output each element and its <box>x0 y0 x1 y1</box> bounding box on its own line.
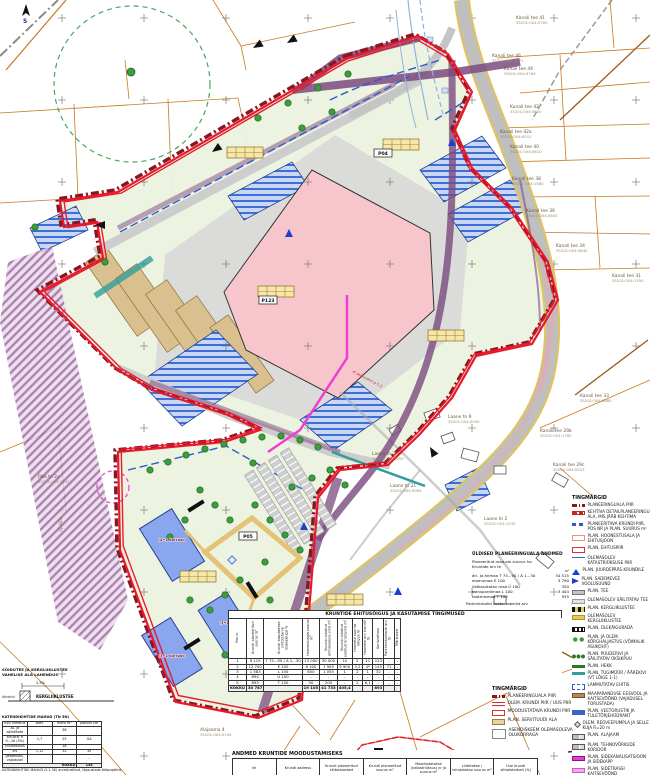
building-rights-table: Pos nrKrundi planeeritud suurus m²Krundi… <box>228 618 401 692</box>
tree-icon <box>289 484 295 490</box>
legend-entry: PLAN. ÜLEKÄIGURADA <box>572 626 650 632</box>
tree-icon <box>327 467 333 473</box>
table-header-cell: Krundi planeeritud sihtotstarbed <box>320 759 364 775</box>
tanbox-swatch <box>492 719 505 725</box>
table-cell: killustik fr 0...16 (5%) <box>3 736 28 745</box>
table-cell <box>27 754 52 763</box>
plot-data-box <box>180 571 216 582</box>
table-header-cell: Liidetakse / lahutatakse suurus m² <box>450 759 494 775</box>
tree-icon <box>183 452 189 458</box>
blackyellow-swatch <box>572 607 585 612</box>
legend-entry-label: KEHTIVA DETAILPLANEERINGU ALA, MIS JÄÄB … <box>588 510 650 520</box>
legend-entry: PLAN. SADEMEVEE VOOLUSUUND <box>572 577 650 587</box>
table-row: 19 115T 75...90 / Ä 1...3013 00030 00010… <box>229 659 401 664</box>
table-cell: killustikalus <box>3 744 28 749</box>
tree-icon <box>222 592 228 598</box>
parcel-code: 35201:004:0053 <box>372 456 404 461</box>
legend-entry-label: OLEMASOLEV KATASTRIÜKSUSE PIIR <box>588 556 650 566</box>
table-header-cell: Krundi aadress <box>276 759 320 775</box>
table-cell: 1,7 <box>27 736 52 745</box>
legend-entry: OLEMASOLEV KERGLIIKLUSTEE <box>572 614 650 624</box>
table-header-cell: Krundi planeeritud suurus m² <box>363 759 407 775</box>
tree-icon <box>345 71 351 77</box>
legend-entry-label: OLEM. REOVEEPUMPLA JA SELLE KUJA R=20 m <box>583 721 650 731</box>
legend-entry: MAAPARANDUSE EESVOOL JA KAITSEVÖÖND (VAJ… <box>572 692 650 706</box>
legend-entry-label: PLAN. JA OLEM. KÕRGHALJASTUS (VÕIMALIK A… <box>588 635 650 649</box>
plot-code-label: P123 <box>262 298 275 304</box>
tree-icon <box>182 517 188 523</box>
legend-entry-label: PLAN. TEHNOVÕRKUDE KORIDOR <box>588 743 650 753</box>
legend-entry: PLAN. JA OLEM. KÕRGHALJASTUS (VÕIMALIK A… <box>572 635 650 649</box>
legend-entry: PLAN. EHITUSPIIR <box>572 546 650 553</box>
table-cell: 30 000 <box>320 659 338 664</box>
section-dim: 2,5% <box>36 681 46 685</box>
building-rights-table-wrap: KRUNTIDE EHITUSÕIGUS JA KASUTAMISE TINGI… <box>228 610 562 692</box>
parcel-code: 35201:004:1241 <box>38 479 70 484</box>
table-row: AC ja asfaltkate38 <box>3 727 102 736</box>
table-cell: 9 900 <box>337 664 352 669</box>
legend-entry-label: PLAN. SADEMEVEE VOOLUSUUND <box>582 577 650 587</box>
table-header-cell: Hoonestusala suurus m² <box>302 619 320 659</box>
tree-icon <box>285 100 291 106</box>
tree-icon <box>187 597 193 603</box>
tree-icon <box>255 115 261 121</box>
table-header-cell: Suurim lubatud ehitisealune pind m² <box>320 619 338 659</box>
salmon-swatch <box>572 535 585 541</box>
parcel-code: 35201:004:0805 <box>526 213 558 218</box>
legend-entry-label: PLAN. TUGIMÜÜR / ÄÄREKIVI (VT LÕIGE 1-1) <box>588 671 650 681</box>
legend-entry: PLAN. SIDETRASSI KAITSEVÖÖND <box>572 767 650 775</box>
legend-entry: PLAN. TEHNOVÕRKUDE KORIDOR <box>572 743 650 753</box>
legend-entry: PLAN. VEETORUSTIK JA TULETÕRJEHÜDRANT <box>572 709 650 719</box>
zebra-swatch <box>572 627 585 632</box>
legend-secondary-entries: PLANEERINGUALA PIIROLEM. KRUNDI PIIR / U… <box>492 694 582 739</box>
legend-entry-label: ASENDISKEEM OLEMASOLEVA OLUKORRAGA <box>509 728 583 738</box>
tree-icon <box>252 502 258 508</box>
plot-data-box <box>327 594 363 605</box>
tree-icon <box>297 547 303 553</box>
planning-data-land-rows: äri- ja ärimaa T 75...90 / Ä 1...3034 51… <box>472 573 578 599</box>
bluearr-swatch <box>572 578 579 584</box>
materials-table: Kihi nimetuskoef.maht m³paksus cmAC ja a… <box>2 721 102 768</box>
table-cell: KOKKU <box>229 686 247 691</box>
tree-icon <box>250 460 256 466</box>
legend-entry: PLAN. JUURDEPÄÄS KRUNDILE <box>572 568 650 575</box>
trees-swatch <box>572 636 585 643</box>
table-header-row: NrKrundi aadressKrundi planeeritud sihto… <box>233 759 538 775</box>
table-cell: – <box>77 754 102 763</box>
table-cell: 30 787 <box>246 686 264 691</box>
legend: TINGMÄRGID PLANEERINGUALA PIIRKEHTIVA DE… <box>572 496 650 775</box>
tree-icon <box>259 434 265 440</box>
tree-icon <box>207 607 213 613</box>
table-row: 212 700E 1006 1001 9059 9003,24*14571- <box>229 664 401 669</box>
cross-section-drawing: 2,5% äärekivi KERGLIIKLUSTEE <box>2 677 120 711</box>
greybox2-swatch <box>572 744 585 750</box>
table-cell <box>27 727 52 736</box>
areapiir-swatch <box>572 504 585 507</box>
legend-entry-label: PLANEERITAVA KRUNDI PIIR, POS NR JA PLAN… <box>588 522 650 532</box>
table-cell <box>394 686 401 691</box>
legend-entry-label: PLANEERINGUALA PIIR <box>508 694 556 699</box>
planning-data-row: Kruntide arv tk5 <box>472 564 578 569</box>
legend-entry: OLEMASOLEV SÄILITATAV TEE <box>572 598 650 604</box>
legend-entry-label: OLEM. KRUNDI PIIR / UUS PIIR <box>508 701 572 706</box>
table-header-row: Pos nrKrundi planeeritud suurus m²Krundi… <box>229 619 401 659</box>
table-cell <box>352 686 362 691</box>
building-storeys-label: (3+1 korrust) <box>158 654 186 658</box>
table-cell: AC ja asfaltkate <box>3 727 28 736</box>
parcel-code: 35201:004:0194 <box>200 732 232 737</box>
table-total-row: KOKKU134 <box>3 763 102 768</box>
table-cell <box>363 686 373 691</box>
parcel-code: 35201:004:0840 <box>556 248 588 253</box>
table-header-cell: Krundi kasutamise sihtotstarve osakaalug… <box>264 619 302 659</box>
svg-text:S: S <box>23 18 27 25</box>
legend-entry-label: PLAN. HEKK <box>588 664 612 669</box>
parcel-code: 35201:004:0012 <box>500 134 532 139</box>
parcel-code: 35201:004:1580 <box>512 181 544 186</box>
parking-total-note: Parkimiskohti kokku tabelist arv 31 <box>466 601 576 606</box>
legend-entry: OLEM. KRUNDI PIIR / UUS PIIR <box>492 701 582 706</box>
legend-entry-label: PLAN. JUURDEPÄÄS KRUNDILE <box>583 568 645 573</box>
parcel-code: 35201:004:0013 <box>553 467 585 472</box>
table-row: geotekstiil, vajadusel– <box>3 754 102 763</box>
table-header-cell: paksus cm <box>77 722 102 727</box>
parcel-code: 35201:004:0771 <box>492 58 524 63</box>
legend-entry: PLANEERINGUALA PIIR <box>492 694 582 699</box>
legend-entry-label: PLAN. SIDETRASSI KAITSEVÖÖND <box>588 767 650 775</box>
table-header-cell: Krundi planeeritud suurus m² <box>246 619 264 659</box>
planning-data-block: ÜLDISED PLANEERINGUALA ANDMED Planeeritu… <box>472 552 578 599</box>
parcel-code: 35201:004:1782 <box>540 433 572 438</box>
table-cell: T 75...90 / Ä 1...30 <box>264 659 302 664</box>
parcel-code: 35201:004:0760 <box>504 71 536 76</box>
table-cell: 893 <box>373 686 384 691</box>
plot-data-box <box>428 330 464 341</box>
tree-icon <box>212 502 218 508</box>
table-header-cell: Pos nr <box>229 619 247 659</box>
legend-entry-label: PLAN. HOONESTUSALA JA EHITUSJOON <box>588 534 650 544</box>
table-cell: GA <box>77 736 102 745</box>
legend-entry-label: OLEMASOLEV KERGLIIKLUSTEE <box>588 614 650 624</box>
legend-entry: PLAN. PUUDERIVI JA SÄILITATAV ÜKSIKPUU <box>572 652 650 662</box>
table-cell: 41 733 <box>320 686 338 691</box>
redbox-swatch <box>492 710 505 716</box>
legend-entry: OLEMASOLEV KATASTRIÜKSUSE PIIR <box>572 556 650 566</box>
treerow-swatch <box>572 653 585 660</box>
plot-formation-title: ANDMED KRUNTIDE MOODUSTAMISEKS <box>232 750 538 758</box>
materials-footnote: KATENDIKIHTIDE MAHUD (2:1 5K) arvestusli… <box>2 769 124 773</box>
tree-icon <box>297 437 303 443</box>
plot-data-box <box>258 286 294 297</box>
table-cell: 12 700 <box>246 664 264 669</box>
legend-entry-label: MOODUSTATAVA KRUNDI PIIR <box>508 709 571 714</box>
table-cell: 405,4 <box>337 686 352 691</box>
legend-entry-label: PLAN. PUUDERIVI JA SÄILITATAV ÜKSIKPUU <box>588 652 650 662</box>
legend-entry-label: PLAN. SIDEKANALISATSIOON JA SIDEKAPP <box>588 755 650 765</box>
magenta-swatch <box>572 756 585 761</box>
magental-swatch <box>572 768 585 773</box>
parcel-code: 35201:004:0064 <box>390 488 422 493</box>
table-header-cell: Moodustatakse (katastriüksus) nr ja suur… <box>407 759 451 775</box>
tree-icon <box>197 487 203 493</box>
legend-entry: PLAN. TUGIMÜÜR / ÄÄREKIVI (VT LÕIGE 1-1) <box>572 671 650 681</box>
table-header-cell: Hoonete arv krundil tk <box>363 619 373 659</box>
legend-entry: PLAN. HOONESTUSALA JA EHITUSJOON <box>572 534 650 544</box>
legend-entry-label: PLAN. ALAJAAM <box>588 733 620 738</box>
building-storeys-label: (4+1 korrust) <box>158 538 186 542</box>
plot-data-box <box>227 147 263 158</box>
table-header-cell: Korruselisus <box>373 619 384 659</box>
legend-entry: OLEM. REOVEEPUMPLA JA SELLE KUJA R=20 m <box>572 721 650 731</box>
tree-icon <box>342 482 348 488</box>
table-header-cell: Uue krundi sihtotstarbed (%) <box>494 759 538 775</box>
tree-icon <box>329 109 335 115</box>
legend-entry: PLAN. KERGLIIKLUSTEE <box>572 606 650 612</box>
table-cell: KOKKU <box>3 763 77 768</box>
table-header-cell: Nr <box>233 759 277 775</box>
table-cell: 38 <box>52 727 77 736</box>
tree-icon <box>299 125 305 131</box>
redboxes-swatch <box>572 511 585 515</box>
table-header-cell: Märkused <box>394 619 401 659</box>
legend-title: TINGMÄRGID <box>572 496 650 501</box>
table-cell <box>264 686 302 691</box>
tree-icon <box>221 441 227 447</box>
legend-entry: LAMMUTATAV EHITIS <box>572 683 650 690</box>
legend-entry-label: PLANEERINGUALA PIIR <box>588 503 634 508</box>
plot-formation-table-wrap: ANDMED KRUNTIDE MOODUSTAMISEKS NrKrundi … <box>232 750 538 775</box>
table-header-cell: Parkimiskohtade arv tk <box>384 619 394 659</box>
legend-entry: KEHTIVA DETAILPLANEERINGU ALA, MIS JÄÄB … <box>572 510 650 520</box>
parcel-code: 35201:004:0885 <box>580 398 612 403</box>
legend-entry: PLANEERINGUALA PIIR <box>572 503 650 508</box>
teal-swatch <box>572 672 585 675</box>
legend-entry-label: PLAN. TEE <box>588 589 609 594</box>
table-cell: 134 <box>77 763 102 768</box>
tree-icon <box>240 437 246 443</box>
plot-code-label: P04 <box>378 151 388 157</box>
legend-entry-label: PLAN. SERVITUUDI ALA <box>508 718 558 723</box>
tree-icon <box>282 532 288 538</box>
parcel-code: 35201:004:0650 <box>510 109 542 114</box>
red2-swatch <box>492 702 505 706</box>
legend-entry-label: PLAN. EHITUSPIIR <box>588 546 624 551</box>
parcel-code: 35201:004:0765 <box>516 20 548 25</box>
tree-icon <box>315 444 321 450</box>
legend-entry: MOODUSTATAVA KRUNDI PIIR <box>492 709 582 716</box>
yellow-swatch <box>572 615 585 620</box>
parcel-code: 35201:004:1350 <box>612 278 644 283</box>
legend-entry-label: PLAN. KERGLIIKLUSTEE <box>588 606 635 611</box>
table-header-cell: Suurim lubatud suletud brutopind m² <box>337 619 352 659</box>
village-label: Ojaküla <box>58 516 63 532</box>
tree-icon <box>267 597 273 603</box>
table-cell: 19 105 <box>302 686 320 691</box>
tree-icon <box>102 259 108 265</box>
blueline-swatch <box>572 557 585 559</box>
planning-data-title: ÜLDISED PLANEERINGUALA ANDMED <box>472 552 578 557</box>
tree-icon <box>32 224 38 230</box>
areapiir-swatch <box>492 695 505 698</box>
table-row: killustik fr 0...16 (5%)1,725GA <box>3 736 102 745</box>
parking-total-label: Parkimiskohti kokku tabelist arv <box>466 601 571 606</box>
legend-entry-label: OLEMASOLEV SÄILITATAV TEE <box>588 598 649 603</box>
materials-table-title: KATENDIKIHTIDE MAHUD (TN 5N) <box>2 715 124 719</box>
legend-secondary: TINGMÄRGID PLANEERINGUALA PIIROLEM. KRUN… <box>492 687 582 741</box>
table-cell <box>384 686 394 691</box>
detail-plan-drawing: S Kanali tee 4135201:004:0765Kanali tee … <box>0 0 650 775</box>
table-cell: geotekstiil, vajadusel <box>3 754 28 763</box>
miniplan-swatch <box>492 729 506 739</box>
grey-swatch <box>572 590 585 595</box>
parcel-code: 35201:004:1035 <box>484 521 516 526</box>
hedge-swatch <box>572 665 585 668</box>
tree-icon <box>202 446 208 452</box>
legend-entry-label: MAAPARANDUSE EESVOOL JA KAITSEVÖÖND (VAJ… <box>588 692 650 706</box>
legend-entry: PLAN. ALAJAAM <box>572 733 650 740</box>
legend-entry-label: PLAN. ÜLEKÄIGURADA <box>588 626 633 631</box>
legend-entry: PLAN. SERVITUUDI ALA <box>492 718 582 725</box>
blueboxes-swatch <box>572 523 585 526</box>
tree-icon <box>227 517 233 523</box>
bluetri-swatch <box>572 569 580 575</box>
redbox-swatch <box>572 547 585 553</box>
legend-entry: ASENDISKEEM OLEMASOLEVA OLUKORRAGA <box>492 728 582 739</box>
tree-icon <box>262 559 268 565</box>
legend-entry-label: PLAN. VEETORUSTIK JA TULETÕRJEHÜDRANT <box>588 709 650 719</box>
table-header-cell: Hoonete suurim kõrgus m <box>352 619 362 659</box>
section-label: KERGLIIKLUSTEE <box>36 694 74 699</box>
tree-icon <box>278 433 284 439</box>
table-header-cell: Kihi nimetus <box>3 722 28 727</box>
tree-icon <box>147 467 153 473</box>
table-cell: 13 000 <box>302 659 320 664</box>
planning-data-general: Planeeritud maa-ala suurus ha5,2Kruntide… <box>472 559 578 570</box>
tree-icon <box>309 475 315 481</box>
table-cell: 25 <box>52 736 77 745</box>
tree-icon <box>165 459 171 465</box>
planning-data-row: tootmismaa T 1009351 <box>472 594 578 599</box>
plot-code-label: P05 <box>243 534 253 540</box>
legend-entries: PLANEERINGUALA PIIRKEHTIVA DETAILPLANEER… <box>572 503 650 775</box>
section-side-label: äärekivi <box>2 695 15 699</box>
cross-section-detail: SÕIDUTEE JA KERGLIIKLUSTEE VAHELISE ALA … <box>2 668 124 773</box>
plot-formation-table: NrKrundi aadressKrundi planeeritud sihto… <box>232 758 538 775</box>
table-cell <box>77 727 102 736</box>
parcel-code: 35201:004:0810 <box>510 149 542 154</box>
tree-icon <box>315 85 321 91</box>
tree-icon <box>267 517 273 523</box>
tree-icon <box>237 577 243 583</box>
plot-data-box <box>383 139 419 150</box>
table-total-row: KOKKU30 78719 10541 733405,4893 <box>229 686 401 691</box>
legend-entry: PLAN. HEKK <box>572 664 650 669</box>
legend-entry: PLANEERITAVA KRUNDI PIIR, POS NR JA PLAN… <box>572 522 650 532</box>
legend-entry: PLAN. TEE <box>572 589 650 595</box>
legend-secondary-title: TINGMÄRGID <box>492 687 582 692</box>
building-rights-table-title: KRUNTIDE EHITUSÕIGUS JA KASUTAMISE TINGI… <box>228 610 562 618</box>
table-cell <box>52 754 77 763</box>
greyl-swatch <box>572 599 585 604</box>
legend-entry: PLAN. SIDEKANALISATSIOON JA SIDEKAPP <box>572 755 650 765</box>
parcel-code: 35201:004:0040 <box>448 419 480 424</box>
legend-entry-label: LAMMUTATAV EHITIS <box>588 683 630 688</box>
